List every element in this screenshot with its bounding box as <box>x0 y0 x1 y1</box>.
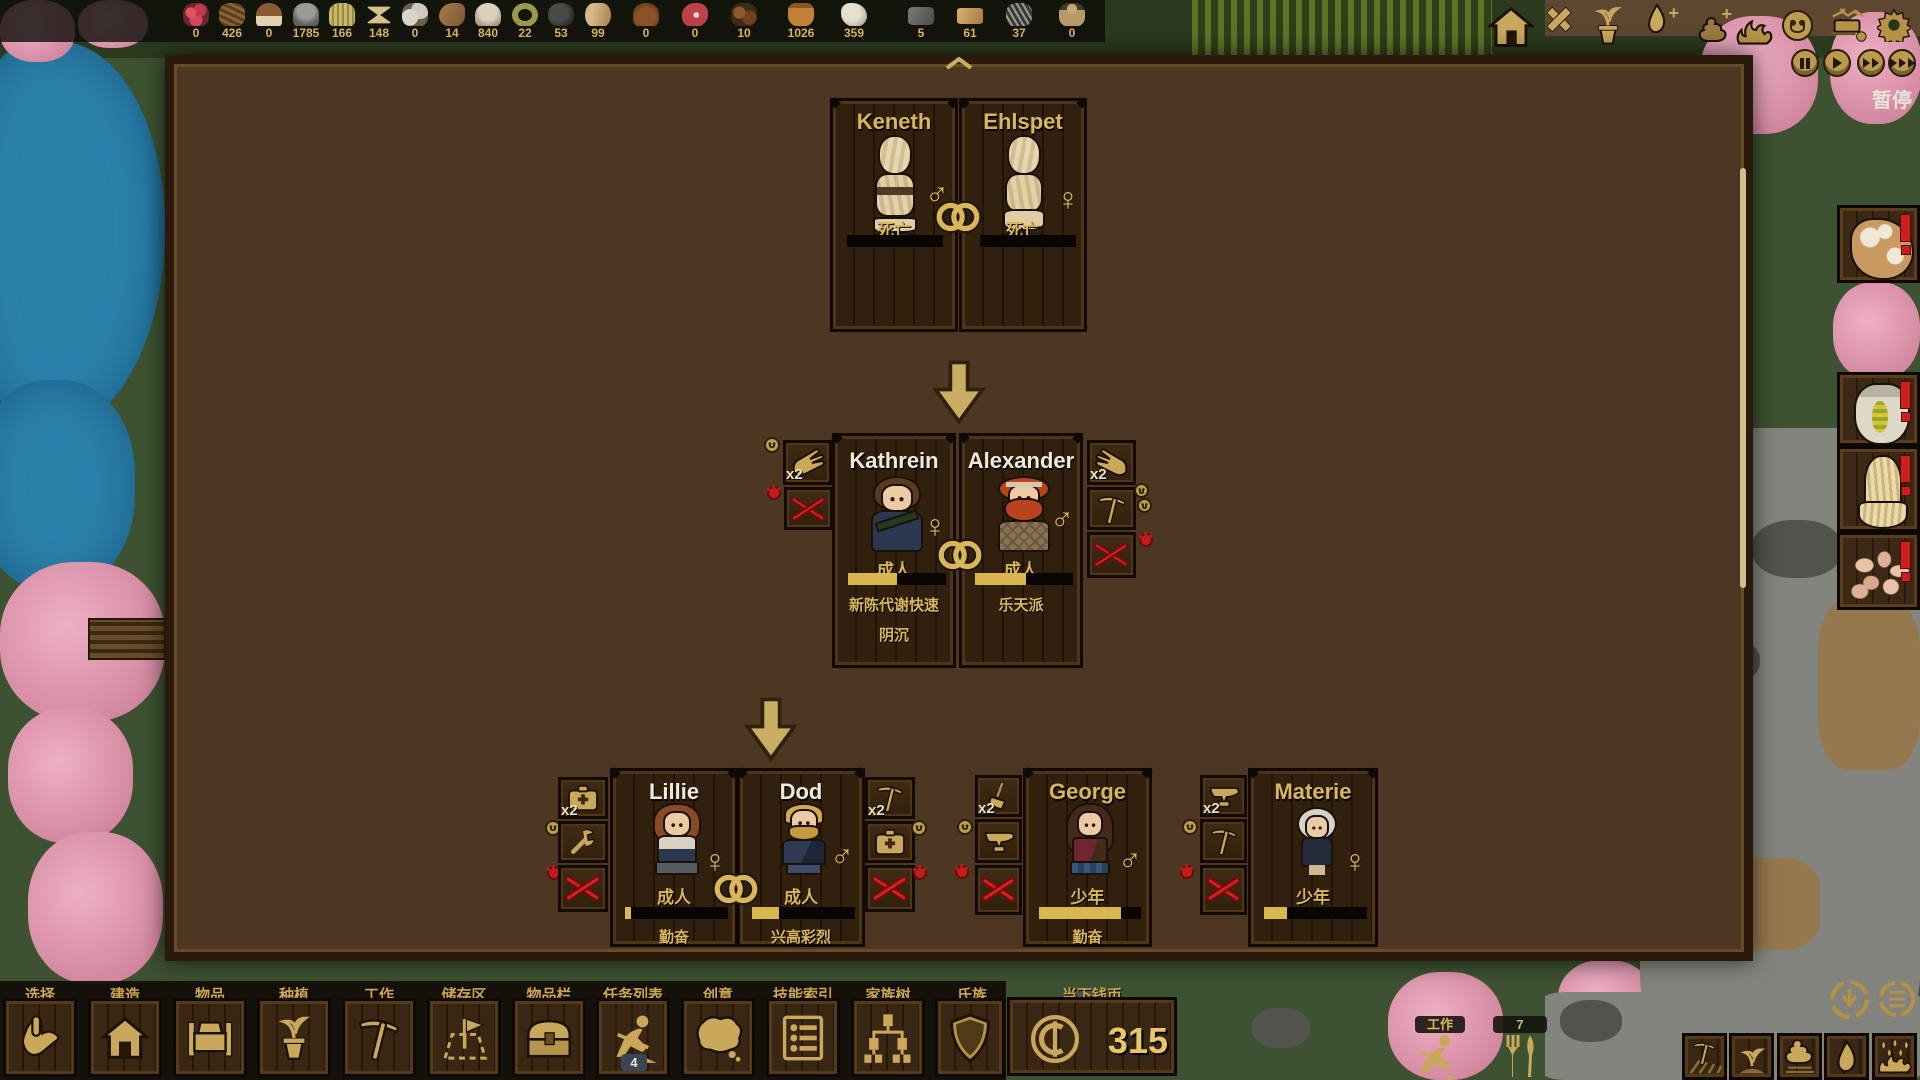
age-progress-bar <box>975 573 1073 585</box>
clan-button[interactable] <box>935 998 1005 1077</box>
anvil-icon <box>983 827 1015 855</box>
ingot-icon <box>908 7 934 25</box>
skill-multiplier: x2 <box>1090 466 1107 483</box>
farm-till-button[interactable] <box>1682 1033 1727 1080</box>
marriage-rings-icon <box>936 536 984 574</box>
terrain-lake <box>0 380 135 590</box>
skill-box-mechanic[interactable] <box>558 821 608 863</box>
trait-label: 阴沉 <box>835 624 953 645</box>
mood-icon <box>1182 819 1198 835</box>
terrain-cherry-tree <box>28 832 163 984</box>
coal-icon <box>548 3 574 27</box>
house-icon <box>1488 5 1534 49</box>
plant-pot-button[interactable] <box>1591 3 1625 48</box>
skill-box-forbidden[interactable] <box>975 865 1022 915</box>
skill-box-forbidden[interactable] <box>558 865 608 912</box>
doll-icon <box>1059 3 1085 27</box>
cycle-list-icon <box>1876 977 1918 1021</box>
pause-state-label: 暂停 <box>1872 84 1912 113</box>
resource-count: 0 <box>1050 26 1094 40</box>
sticks-icon <box>219 3 245 27</box>
irrigate-icon <box>1876 1038 1914 1076</box>
pet-icon <box>767 486 781 500</box>
currency-panel: 315 <box>1007 997 1177 1076</box>
wrench-icon <box>568 827 598 857</box>
character-name: Alexander <box>962 448 1080 474</box>
descend-arrow-icon <box>933 360 985 424</box>
skill-multiplier: x2 <box>868 802 885 819</box>
slot-alert-marker <box>1900 455 1911 483</box>
age-progress-bar <box>847 235 943 247</box>
manure-plus-button[interactable]: + <box>1698 8 1730 42</box>
farm-sow-button[interactable] <box>1729 1033 1774 1080</box>
terrain-dirt-patch <box>1818 598 1920 770</box>
gender-symbol: ♂ <box>1118 841 1142 878</box>
work-marker-label: 工作 <box>1415 1016 1465 1033</box>
pet-icon <box>955 865 969 879</box>
medkit-icon <box>874 828 906 856</box>
trait-label: 勤奋 <box>613 926 735 947</box>
supply-cart-button[interactable] <box>1827 6 1869 46</box>
portrait-lillie <box>645 803 709 879</box>
pause-button[interactable] <box>1791 49 1819 77</box>
mood-icon <box>911 820 927 836</box>
family-tree-icon <box>862 1012 914 1064</box>
age-progress-bar <box>1264 907 1367 919</box>
water-drop-icon <box>1645 3 1669 35</box>
age-progress-bar <box>1039 907 1141 919</box>
terrain-rock <box>1752 520 1842 578</box>
plus-icon: + <box>1668 3 1679 24</box>
skill-box-smith[interactable] <box>975 819 1022 863</box>
meat-icon <box>682 3 708 27</box>
build-button[interactable] <box>88 998 162 1077</box>
status-label: 少年 <box>1251 883 1375 908</box>
terrain-lake <box>0 42 165 432</box>
skill-list-icon <box>780 1013 826 1063</box>
skill-index-button[interactable] <box>766 998 840 1077</box>
water-drop-icon <box>1834 1039 1860 1075</box>
mushroom-icon <box>256 3 282 27</box>
character-name: Lillie <box>613 779 735 805</box>
age-progress-bar <box>980 235 1076 247</box>
portrait-materie <box>1289 807 1345 879</box>
house-icon <box>101 1016 149 1060</box>
cycle-priority-button[interactable] <box>1826 977 1873 1022</box>
age-progress-bar <box>848 573 946 585</box>
coin-icon <box>1030 1014 1080 1064</box>
thought-bubble-icon <box>692 1014 744 1062</box>
chest-icon <box>523 1015 575 1061</box>
skill-box-forbidden[interactable] <box>784 487 833 530</box>
stone-icon <box>475 3 501 27</box>
acorn-icon <box>731 3 757 27</box>
forbidden-x-icon <box>981 872 1015 907</box>
terrain-cherry-tree <box>1833 282 1920 380</box>
happiness-button[interactable] <box>1782 10 1813 41</box>
cycle-down-icon <box>1826 977 1873 1022</box>
fence <box>88 618 166 660</box>
hay-icon <box>329 3 355 27</box>
farm-fertilize-button[interactable] <box>1777 1033 1822 1080</box>
ore-icon <box>293 3 319 27</box>
resource-count: 0 <box>673 26 717 40</box>
sprout-pot-icon <box>274 1014 314 1062</box>
marriage-rings-icon <box>934 198 982 236</box>
forbidden-x-icon <box>872 872 909 905</box>
terrain-cherry-tree <box>8 708 133 843</box>
terrain-crop-field <box>1192 0 1492 58</box>
campfire-button[interactable] <box>1733 17 1775 47</box>
slug-icon <box>439 3 465 27</box>
gender-symbol: ♀ <box>1056 181 1080 218</box>
forbidden-x-icon <box>1093 539 1129 571</box>
gender-symbol: ♂ <box>1050 500 1074 537</box>
task-list-button[interactable]: 4 <box>596 998 670 1077</box>
dirt-icon <box>633 3 659 27</box>
hay-skirt <box>1858 501 1908 529</box>
home-button[interactable] <box>1488 5 1534 49</box>
fertilize-icon <box>1783 1040 1817 1074</box>
trait-label: 兴高彩烈 <box>740 926 862 947</box>
currency-value: 315 <box>1094 1020 1168 1062</box>
shield-icon <box>947 1012 993 1064</box>
inventory-button[interactable] <box>512 998 586 1077</box>
berries-icon <box>183 3 209 27</box>
skill-multiplier: x2 <box>1203 800 1220 817</box>
task-count-badge: 4 <box>621 1054 647 1071</box>
gear-icon <box>1877 8 1911 42</box>
scroll-up-chevron-icon[interactable] <box>945 57 973 69</box>
play-button[interactable] <box>1823 49 1851 77</box>
portrait-george <box>1058 803 1122 881</box>
family-card-dod[interactable]: Dod ♂ 成人 兴高彩烈 <box>737 768 865 947</box>
jug-icon <box>788 3 814 27</box>
pickaxe-icon <box>1208 825 1240 857</box>
character-name: Materie <box>1251 779 1375 805</box>
marriage-rings-icon <box>712 870 760 908</box>
fastest-forward-icon <box>1890 58 1915 68</box>
skill-box-farm[interactable] <box>1087 487 1136 530</box>
skill-box-forbidden[interactable] <box>1200 865 1247 915</box>
mood-icon <box>764 437 780 453</box>
water-plus-button[interactable]: + <box>1645 3 1679 39</box>
character-name: Keneth <box>833 109 955 135</box>
family-card-materie[interactable]: Materie ♀ 少年 <box>1248 768 1378 947</box>
farm-water-button[interactable] <box>1824 1033 1869 1080</box>
mood-icon <box>1134 483 1149 498</box>
pointer-hand-icon <box>18 1014 62 1062</box>
campfire-icon <box>1733 17 1775 47</box>
settings-button[interactable] <box>1877 8 1911 42</box>
portrait-dod <box>772 803 836 879</box>
descend-arrow-icon <box>745 697 797 761</box>
nails-icon <box>1006 3 1032 27</box>
fork-knife-icon <box>1500 1033 1540 1079</box>
resource-count: 0 <box>624 26 668 40</box>
forbidden-x-icon <box>565 872 602 905</box>
forbidden-x-icon <box>1206 872 1240 907</box>
character-name: Ehlspet <box>962 109 1084 135</box>
panel-scrollbar[interactable] <box>1740 168 1746 588</box>
log-icon <box>585 3 611 27</box>
hide-icon <box>841 3 867 27</box>
bone-icon <box>402 3 428 27</box>
mood-icon <box>1137 498 1152 513</box>
cycle-list-button[interactable] <box>1876 977 1918 1021</box>
resource-count: 5 <box>899 26 943 40</box>
worker-marker-icon <box>1412 1032 1460 1080</box>
skill-multiplier: x2 <box>561 802 578 819</box>
skill-box-forbidden[interactable] <box>865 865 915 912</box>
supply-cart-icon <box>1827 6 1869 46</box>
character-name: Kathrein <box>835 448 953 474</box>
plant-pot-icon <box>1591 3 1625 48</box>
skill-box-mining[interactable] <box>1200 819 1247 863</box>
close-panel-button[interactable] <box>1545 8 1571 42</box>
slot-hide[interactable] <box>1837 205 1920 283</box>
age-progress-bar <box>625 907 728 919</box>
resource-count: 61 <box>948 26 992 40</box>
pickaxe-icon <box>354 1013 404 1063</box>
game-screen: 0 426 0 1785 166 148 0 14 840 22 53 99 0… <box>0 0 1920 1080</box>
plank-icon <box>957 8 983 24</box>
family-tree-button[interactable] <box>851 998 925 1077</box>
skill-box-forbidden[interactable] <box>1087 532 1136 578</box>
trait-label: 勤奋 <box>1026 926 1149 947</box>
plus-icon: + <box>1721 4 1732 25</box>
slot-alert-marker <box>1900 381 1911 409</box>
mood-icon <box>957 819 973 835</box>
status-label: 少年 <box>1026 883 1149 908</box>
pet-icon <box>1139 533 1153 547</box>
sow-icon <box>1734 1038 1770 1076</box>
gender-symbol: ♂ <box>830 837 854 874</box>
food-count-badge: 7 <box>1493 1016 1547 1033</box>
stockpile-flag-icon <box>438 1014 490 1062</box>
items-button[interactable] <box>173 998 247 1077</box>
ideas-button[interactable] <box>681 998 755 1077</box>
pause-icon <box>1800 58 1810 69</box>
slot-hay-bundle[interactable] <box>1837 446 1920 532</box>
family-card-george[interactable]: George ♂ 少年 勤奋 <box>1023 768 1152 947</box>
fastest-forward-button[interactable] <box>1888 49 1916 77</box>
fast-forward-icon <box>1863 58 1879 68</box>
stockpile-button[interactable] <box>427 998 501 1077</box>
rope-icon <box>512 3 538 27</box>
bed-icon <box>186 1017 234 1059</box>
slot-grain-bag[interactable] <box>1837 372 1920 446</box>
fast-forward-button[interactable] <box>1857 49 1885 77</box>
skill-box-medic[interactable] <box>865 821 915 863</box>
trait-label: 乐天派 <box>962 594 1080 615</box>
farm-irrigate-button[interactable] <box>1872 1033 1917 1080</box>
resource-count: 359 <box>832 26 876 40</box>
play-icon <box>1833 57 1842 69</box>
skill-multiplier: x2 <box>978 800 995 817</box>
plant-button[interactable] <box>257 998 331 1077</box>
trait-label: 新陈代谢快速 <box>835 594 953 615</box>
resource-count: 10 <box>722 26 766 40</box>
gender-symbol: ♀ <box>1343 843 1367 880</box>
pet-icon <box>1180 865 1194 879</box>
age-progress-bar <box>752 907 855 919</box>
resource-count: 1026 <box>779 26 823 40</box>
character-name: George <box>1026 779 1149 805</box>
work-button[interactable] <box>342 998 416 1077</box>
scythe-icon <box>1095 492 1129 526</box>
forbidden-x-icon <box>790 494 826 524</box>
wheat-emblem <box>1872 401 1888 433</box>
slot-seeds[interactable] <box>1837 532 1920 610</box>
resource-count: 37 <box>997 26 1041 40</box>
character-name: Dod <box>740 779 862 805</box>
slot-alert-marker <box>1900 541 1911 569</box>
select-tool-button[interactable] <box>3 998 77 1077</box>
slot-alert-marker <box>1900 214 1911 242</box>
terrain-rock <box>1560 1000 1622 1042</box>
terrain-rock <box>1252 1008 1310 1048</box>
family-card-lillie[interactable]: Lillie ♀ 成人 勤奋 <box>610 768 738 947</box>
till-icon <box>1687 1038 1723 1076</box>
resource-count: 99 <box>576 26 620 40</box>
skill-multiplier: x2 <box>786 466 803 483</box>
pet-icon <box>913 866 927 880</box>
